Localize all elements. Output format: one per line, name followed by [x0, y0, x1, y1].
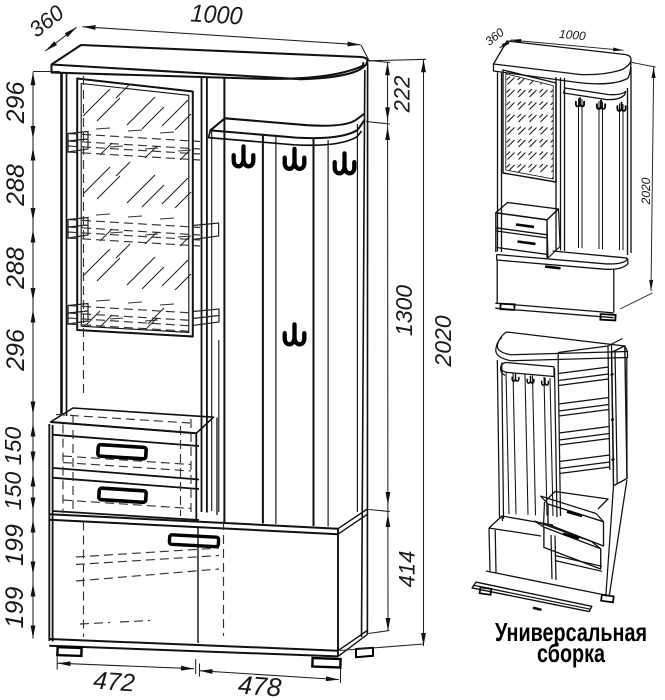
svg-text:288: 288: [2, 164, 30, 207]
svg-text:1000: 1000: [190, 0, 244, 31]
svg-text:199: 199: [1, 587, 29, 629]
svg-text:296: 296: [2, 82, 30, 125]
svg-text:414: 414: [395, 551, 420, 588]
svg-text:222: 222: [390, 76, 415, 114]
svg-text:1000: 1000: [558, 27, 586, 43]
svg-text:199: 199: [1, 524, 29, 566]
svg-text:сборка: сборка: [537, 638, 605, 668]
svg-text:1300: 1300: [391, 285, 417, 336]
svg-text:150: 150: [0, 427, 26, 466]
svg-text:2020: 2020: [430, 315, 456, 367]
svg-text:472: 472: [92, 667, 136, 698]
svg-text:288: 288: [2, 247, 30, 290]
svg-text:478: 478: [237, 670, 283, 700]
svg-text:296: 296: [2, 329, 30, 372]
svg-text:150: 150: [0, 472, 26, 511]
svg-text:2020: 2020: [639, 177, 653, 205]
